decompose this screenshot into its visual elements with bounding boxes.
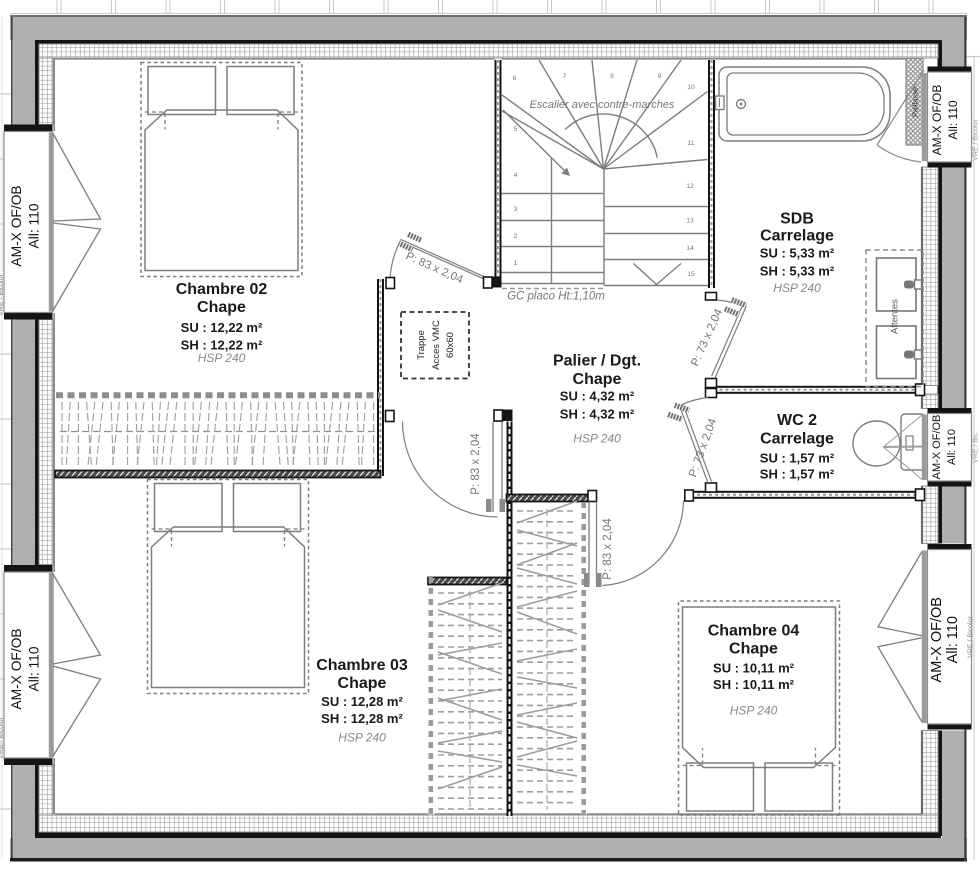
svg-text:8: 8 <box>610 73 614 80</box>
svg-text:SDB: SDB <box>780 211 814 228</box>
svg-text:3: 3 <box>514 206 518 213</box>
svg-text:SH : 5,33 m²: SH : 5,33 m² <box>760 264 835 279</box>
svg-text:Chape: Chape <box>729 641 778 658</box>
svg-text:SH : 1,57 m²: SH : 1,57 m² <box>760 467 835 482</box>
svg-text:Escalier avec contre-marches: Escalier avec contre-marches <box>530 99 675 111</box>
svg-text:10: 10 <box>687 84 695 91</box>
svg-text:Carrelage: Carrelage <box>760 228 834 245</box>
svg-text:7: 7 <box>563 73 567 80</box>
svg-text:Chape: Chape <box>338 675 387 692</box>
svg-text:Chambre 02: Chambre 02 <box>176 281 268 298</box>
svg-text:Paillasse: Paillasse <box>911 87 920 117</box>
svg-text:P: 83 x 2,04: P: 83 x 2,04 <box>602 518 614 580</box>
svg-text:Trappe: Trappe <box>416 330 427 360</box>
svg-text:Palier / Dgt.: Palier / Dgt. <box>553 353 641 370</box>
svg-text:SU : 12,28 m²: SU : 12,28 m² <box>321 694 403 709</box>
svg-text:2: 2 <box>514 233 518 240</box>
svg-text:4: 4 <box>514 172 518 179</box>
svg-text:Carrelage: Carrelage <box>760 431 834 448</box>
svg-text:AM-X OF/OB: AM-X OF/OB <box>9 185 24 266</box>
svg-text:14: 14 <box>686 245 694 252</box>
svg-text:Acces VMC: Acces VMC <box>431 320 442 370</box>
svg-text:HSP 240: HSP 240 <box>730 704 778 718</box>
svg-text:VRE / Bicolor: VRE / Bicolor <box>968 616 975 658</box>
svg-text:11: 11 <box>687 140 694 147</box>
svg-text:SU : 1,57 m²: SU : 1,57 m² <box>760 451 835 466</box>
svg-text:VRE / Bicolor: VRE / Bicolor <box>0 274 5 316</box>
svg-text:SH : 10,11 m²: SH : 10,11 m² <box>713 677 795 692</box>
svg-text:12: 12 <box>686 183 694 190</box>
svg-text:13: 13 <box>686 218 694 225</box>
svg-text:VRE / Bicolor: VRE / Bicolor <box>0 717 5 759</box>
svg-text:Chambre 04: Chambre 04 <box>708 623 800 640</box>
svg-text:Attentes: Attentes <box>890 299 901 334</box>
svg-text:Chape: Chape <box>573 371 622 388</box>
svg-text:60x60: 60x60 <box>445 332 456 358</box>
svg-text:6: 6 <box>513 75 517 82</box>
svg-text:15: 15 <box>687 271 695 278</box>
svg-text:Chape: Chape <box>197 299 246 316</box>
svg-text:9: 9 <box>658 73 662 80</box>
svg-text:SU : 4,32 m²: SU : 4,32 m² <box>560 389 635 404</box>
svg-text:VRE / Bicolor: VRE / Bicolor <box>973 119 980 161</box>
svg-text:HSP 240: HSP 240 <box>198 351 246 365</box>
svg-text:HSP 240: HSP 240 <box>573 432 621 446</box>
svg-text:All: 110: All: 110 <box>945 616 961 663</box>
svg-text:All: 110: All: 110 <box>27 646 42 691</box>
svg-text:SU : 10,11 m²: SU : 10,11 m² <box>713 661 795 676</box>
svg-text:SU : 5,33 m²: SU : 5,33 m² <box>760 246 835 261</box>
svg-text:All: 110: All: 110 <box>27 203 42 248</box>
svg-text:HSP 240: HSP 240 <box>338 731 386 745</box>
svg-text:SH : 12,28 m²: SH : 12,28 m² <box>321 711 403 726</box>
svg-text:P: 83 x 2,04: P: 83 x 2,04 <box>470 433 482 495</box>
svg-text:All: 110: All: 110 <box>946 429 958 465</box>
svg-text:SH : 4,32 m²: SH : 4,32 m² <box>560 407 635 422</box>
svg-text:AM-X OF/OB: AM-X OF/OB <box>9 628 24 709</box>
svg-text:AM-X OF/OB: AM-X OF/OB <box>929 597 945 682</box>
svg-text:1: 1 <box>514 260 518 267</box>
svg-text:HSP 240: HSP 240 <box>773 281 821 295</box>
svg-text:AM-X OF/OB: AM-X OF/OB <box>930 85 944 156</box>
svg-text:All: 110: All: 110 <box>946 100 960 139</box>
svg-text:WC 2: WC 2 <box>777 412 817 429</box>
svg-text:AM-X OF/OB: AM-X OF/OB <box>931 415 943 480</box>
svg-text:5: 5 <box>514 126 518 133</box>
svg-text:VRE / Bic.: VRE / Bic. <box>973 431 980 463</box>
svg-text:GC placo Ht:1,10m: GC placo Ht:1,10m <box>507 291 605 303</box>
svg-text:Chambre 03: Chambre 03 <box>316 657 408 674</box>
svg-text:SU : 12,22 m²: SU : 12,22 m² <box>181 320 263 335</box>
